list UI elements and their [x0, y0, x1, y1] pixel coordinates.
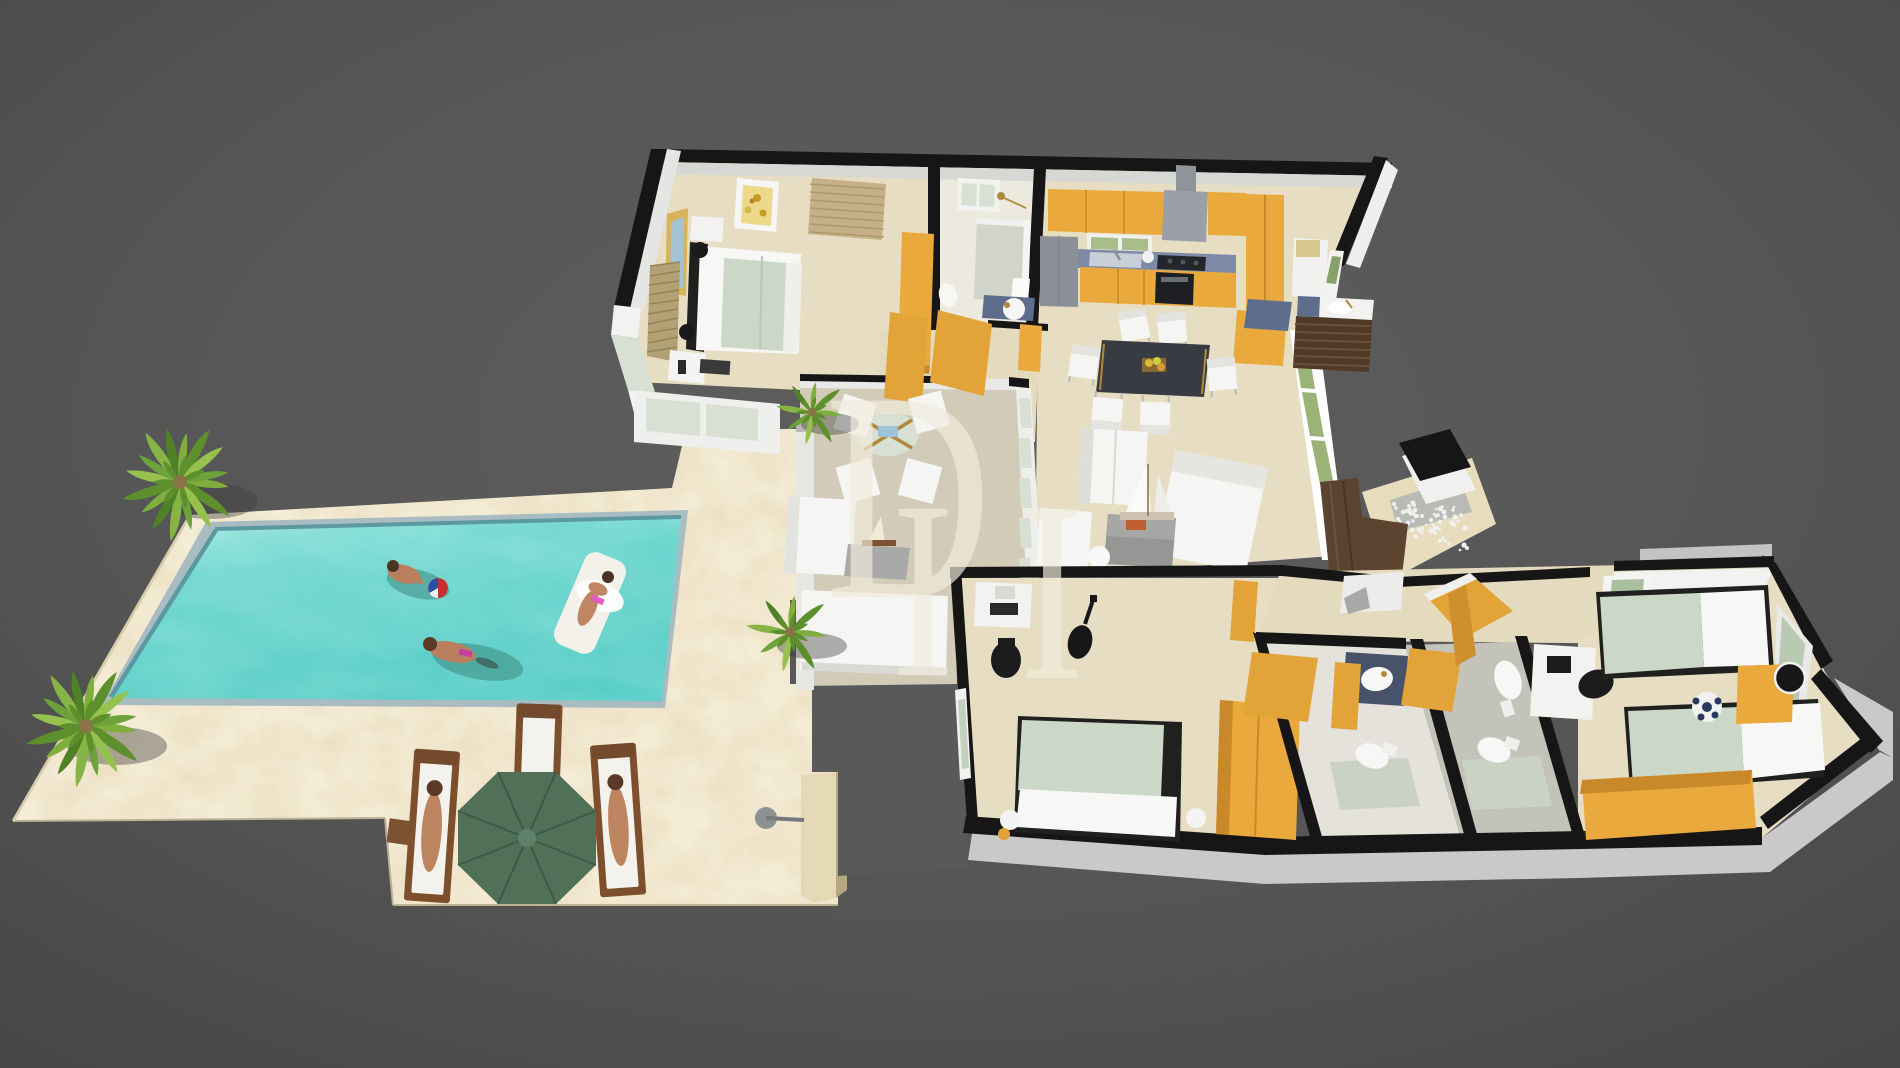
svg-text:I: I [1020, 449, 1084, 734]
svg-text:D: D [825, 329, 992, 662]
